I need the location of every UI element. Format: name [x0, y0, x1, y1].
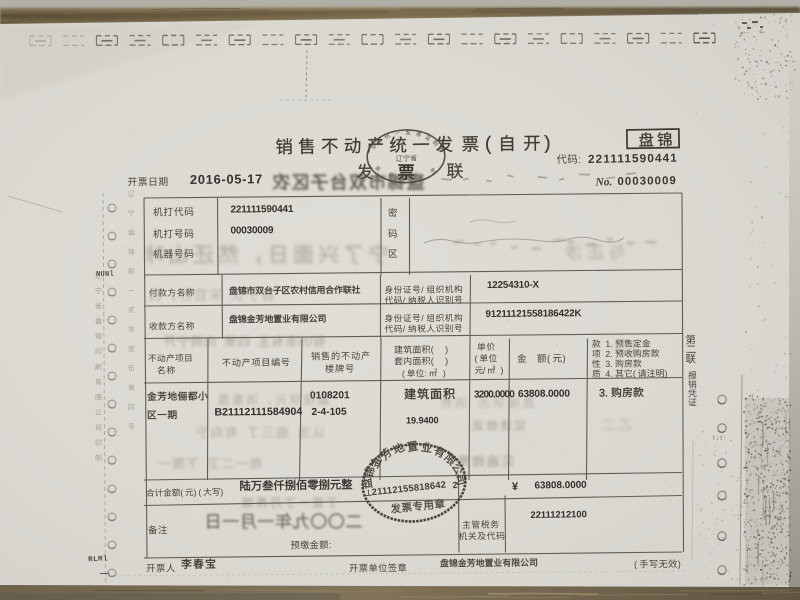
svg-text:0: 0: [305, 334, 312, 349]
svg-text:(: (: [198, 487, 201, 497]
svg-text:.: .: [610, 369, 613, 379]
svg-text:RLMl: RLMl: [88, 556, 108, 565]
svg-text:91211121558186422K: 91211121558186422K: [485, 308, 581, 320]
svg-text:.: .: [605, 387, 608, 399]
svg-text:2-4-105: 2-4-105: [311, 407, 347, 418]
svg-text:m: m: [429, 368, 436, 378]
svg-text:B21112111584904: B21112111584904: [214, 406, 302, 419]
svg-text:(: (: [180, 487, 183, 497]
svg-text:.: .: [610, 349, 613, 359]
svg-text:22111212100: 22111212100: [530, 508, 586, 520]
svg-text:221111590441: 221111590441: [588, 151, 678, 166]
svg-text:00030009: 00030009: [617, 175, 677, 188]
svg-text:(: (: [474, 353, 477, 363]
svg-text:.: .: [610, 339, 613, 349]
svg-text:221111590441: 221111590441: [230, 204, 293, 216]
svg-text:0108201: 0108201: [310, 390, 350, 401]
svg-text:): ): [194, 487, 197, 497]
svg-text:(: (: [431, 356, 434, 366]
svg-text:!↓!↑: !↓!↑: [712, 435, 726, 442]
svg-text:2: 2: [452, 480, 458, 490]
svg-text:5: 5: [298, 334, 305, 349]
svg-text:(: (: [431, 345, 434, 355]
svg-text::: :: [578, 154, 581, 166]
svg-text:—: —: [100, 568, 109, 578]
svg-text:m: m: [487, 365, 494, 375]
svg-text:): ): [445, 345, 448, 355]
svg-text:): ): [544, 133, 551, 154]
svg-text:): ): [443, 368, 446, 378]
svg-text:): ): [664, 368, 667, 378]
svg-text:): ): [562, 354, 565, 365]
svg-text:): ): [220, 487, 223, 497]
svg-text:): ): [500, 365, 503, 375]
svg-text:¥: ¥: [512, 481, 519, 493]
svg-text:(: (: [633, 369, 636, 379]
svg-text:): ): [445, 356, 448, 366]
svg-text:): ): [678, 559, 681, 569]
svg-text:NUNl: NUNl: [96, 271, 114, 279]
svg-text::: :: [329, 540, 332, 550]
svg-text:12254310-X: 12254310-X: [487, 280, 540, 291]
svg-text:.: .: [610, 359, 613, 369]
svg-text:00030009: 00030009: [230, 225, 274, 236]
svg-text:(: (: [402, 368, 405, 378]
svg-text:19.9400: 19.9400: [406, 415, 439, 425]
svg-text::: :: [424, 368, 426, 378]
svg-text:2016-05-17: 2016-05-17: [190, 171, 263, 187]
svg-text:(: (: [485, 134, 492, 155]
svg-text:63808.0000: 63808.0000: [534, 480, 587, 492]
